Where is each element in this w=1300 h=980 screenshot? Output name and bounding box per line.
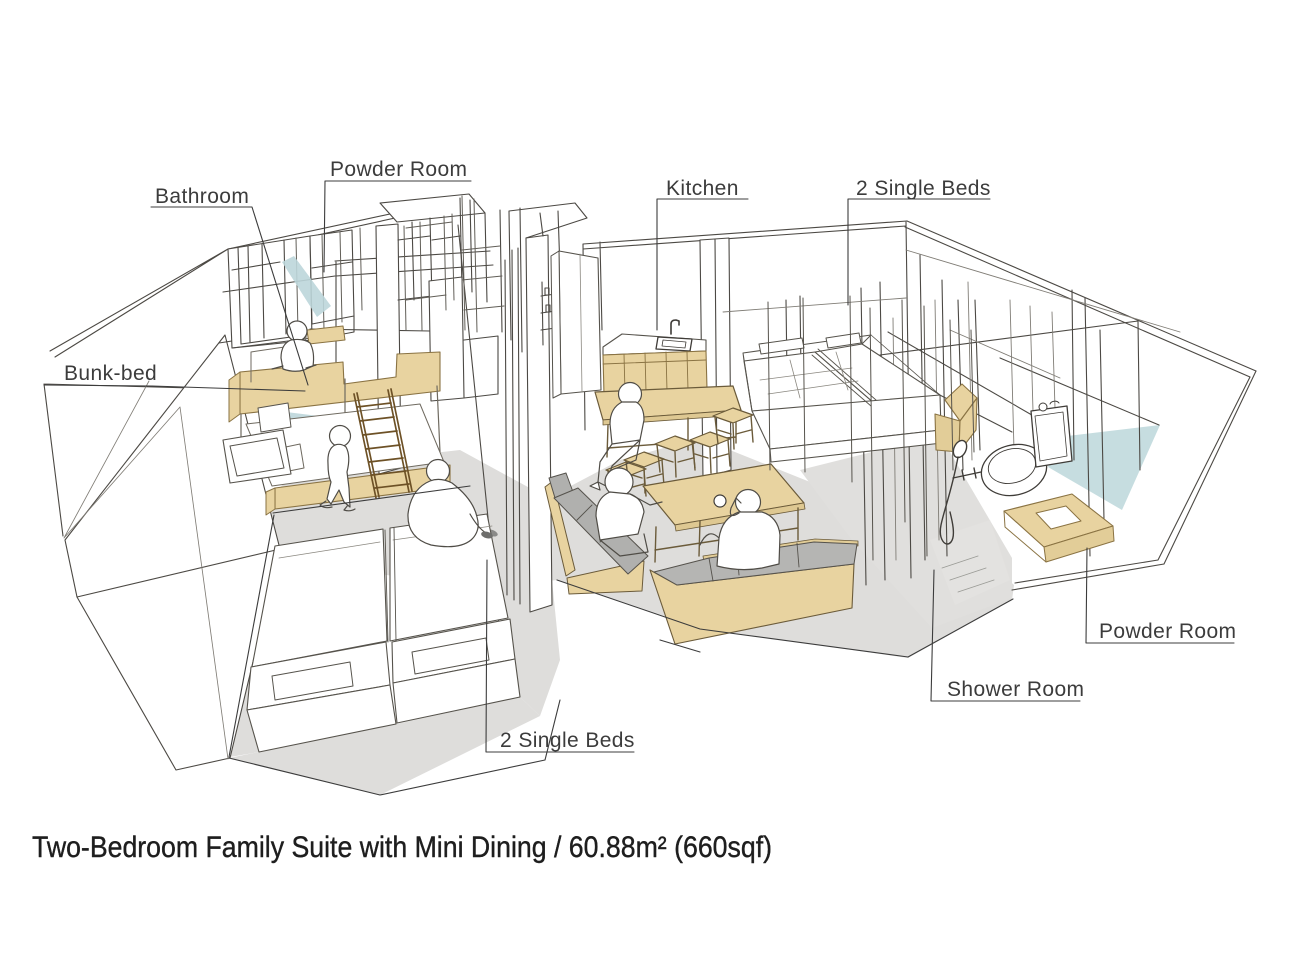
- svg-text:Bathroom: Bathroom: [155, 185, 249, 208]
- svg-text:Bunk-bed: Bunk-bed: [64, 362, 157, 385]
- svg-text:Two-Bedroom Family Suite with: Two-Bedroom Family Suite with Mini Dinin…: [32, 831, 772, 864]
- svg-text:2 Single Beds: 2 Single Beds: [856, 177, 991, 200]
- svg-text:Shower Room: Shower Room: [947, 678, 1084, 701]
- svg-text:Kitchen: Kitchen: [666, 177, 739, 200]
- svg-text:2 Single Beds: 2 Single Beds: [500, 729, 635, 752]
- svg-text:Powder Room: Powder Room: [1099, 620, 1236, 643]
- svg-text:Powder Room: Powder Room: [330, 158, 467, 181]
